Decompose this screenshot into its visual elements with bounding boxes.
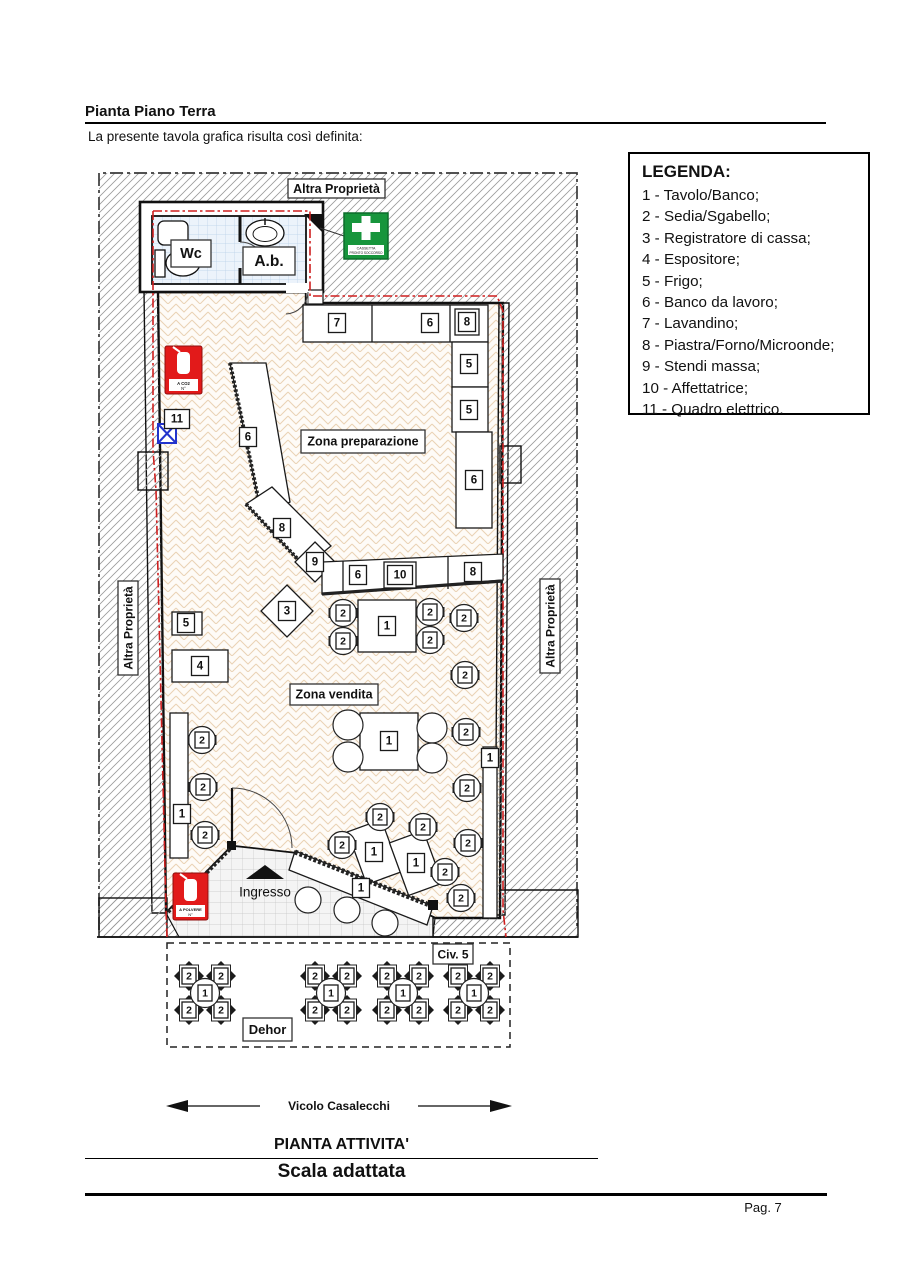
furniture-marker-2: 2 [340, 1002, 354, 1018]
svg-text:2: 2 [455, 971, 461, 983]
chair-marker: 2 [453, 719, 480, 746]
chair-marker: 2 [410, 814, 437, 841]
svg-text:2: 2 [462, 670, 468, 682]
chair-marker: 2 [330, 628, 357, 655]
svg-text:1: 1 [384, 621, 391, 633]
furniture-marker-2: 2 [461, 835, 475, 851]
furniture-marker-2: 2 [335, 837, 349, 853]
svg-text:7: 7 [334, 318, 340, 330]
dehor-table-group: 22221 [300, 961, 362, 1025]
furniture-marker-2: 2 [454, 890, 468, 906]
svg-text:2: 2 [218, 1005, 224, 1017]
svg-text:2: 2 [186, 971, 192, 983]
furniture-marker-2: 2 [336, 605, 350, 621]
furniture-marker-6: 6 [466, 471, 483, 490]
svg-text:2: 2 [461, 613, 467, 625]
chair-marker: 2 [455, 830, 482, 857]
chair-marker: 2 [192, 822, 219, 849]
extinguisher-sign-co2: A CO2 N° [165, 346, 202, 394]
svg-text:2: 2 [465, 838, 471, 850]
svg-text:1: 1 [179, 809, 186, 821]
svg-text:2: 2 [186, 1005, 192, 1017]
ab-label: A.b. [254, 253, 283, 270]
chair-marker: 2 [190, 774, 217, 801]
furniture-marker-2: 2 [340, 968, 354, 984]
street-caption: Vicolo Casalecchi [166, 1099, 512, 1113]
extinguisher-sign-powder: A POLVERE N° [173, 873, 208, 920]
svg-text:2: 2 [442, 867, 448, 879]
furniture-marker-5: 5 [461, 355, 478, 374]
furniture-marker-8: 8 [274, 519, 291, 538]
extinguisher-powder-text-2: N° [188, 912, 193, 917]
furniture-marker-8: 8 [465, 563, 482, 582]
civic-number-label: Civ. 5 [437, 948, 468, 962]
extinguisher-co2-text-2: N° [181, 386, 186, 391]
furniture-marker-9: 9 [307, 553, 324, 572]
furniture-marker-1: 1 [482, 749, 499, 768]
dehor-table-group: 22221 [443, 961, 505, 1025]
chair-marker: 2 [329, 832, 356, 859]
furniture-marker-2: 2 [214, 1002, 228, 1018]
svg-text:1: 1 [471, 988, 477, 1000]
svg-text:2: 2 [487, 1005, 493, 1017]
furniture-marker-5: 5 [178, 614, 195, 633]
furniture-marker-11: 11 [165, 410, 190, 429]
wc-label: Wc [180, 246, 202, 262]
furniture-marker-2: 2 [423, 604, 437, 620]
chair-marker: 2 [417, 627, 444, 654]
svg-text:2: 2 [427, 635, 433, 647]
sales-zone-label: Zona vendita [295, 688, 373, 702]
furniture-marker-6: 6 [422, 314, 439, 333]
svg-text:2: 2 [463, 727, 469, 739]
first-aid-sign: CASSETTA PRONTO SOCCORSO [344, 213, 388, 259]
furniture-marker-1: 1 [467, 985, 481, 1001]
furniture-marker-2: 2 [457, 610, 471, 626]
prep-zone-label: Zona preparazione [307, 435, 418, 449]
furniture-marker-2: 2 [458, 667, 472, 683]
svg-text:8: 8 [464, 317, 471, 329]
furniture-marker-2: 2 [182, 968, 196, 984]
furniture-marker-1: 1 [353, 879, 370, 898]
furniture-marker-2: 2 [336, 633, 350, 649]
furniture-marker-6: 6 [240, 428, 257, 447]
chair-marker: 2 [448, 885, 475, 912]
svg-text:11: 11 [171, 414, 184, 426]
furniture-marker-7: 7 [329, 314, 346, 333]
furniture-marker-2: 2 [460, 780, 474, 796]
svg-text:9: 9 [312, 557, 318, 569]
other-property-top-label: Altra Proprietà [293, 182, 380, 196]
svg-text:5: 5 [183, 618, 190, 630]
svg-text:6: 6 [471, 475, 477, 487]
furniture-marker-1: 1 [324, 985, 338, 1001]
svg-text:1: 1 [400, 988, 406, 1000]
furniture-marker-1: 1 [381, 732, 398, 751]
furniture-marker-1: 1 [408, 854, 425, 873]
svg-text:2: 2 [487, 971, 493, 983]
furniture-marker-10: 10 [384, 562, 416, 588]
chair-marker: 2 [452, 662, 479, 689]
first-aid-text-2: PRONTO SOCCORSO [349, 251, 383, 255]
furniture-marker-2: 2 [416, 819, 430, 835]
svg-text:3: 3 [284, 606, 290, 618]
svg-text:1: 1 [487, 753, 494, 765]
dehor-table-group: 22221 [372, 961, 434, 1025]
furniture-marker-2: 2 [308, 968, 322, 984]
svg-text:2: 2 [377, 812, 383, 824]
furniture-marker-1: 1 [396, 985, 410, 1001]
svg-text:1: 1 [386, 736, 393, 748]
svg-text:2: 2 [384, 1005, 390, 1017]
svg-text:2: 2 [458, 893, 464, 905]
furniture-marker-2: 2 [214, 968, 228, 984]
furniture-marker-2: 2 [451, 968, 465, 984]
furniture-marker-1: 1 [174, 805, 191, 824]
furniture-marker-2: 2 [412, 1002, 426, 1018]
svg-text:5: 5 [466, 405, 473, 417]
furniture-marker-2: 2 [380, 1002, 394, 1018]
svg-text:2: 2 [384, 971, 390, 983]
stool-circle [333, 742, 363, 772]
toilet-tank [155, 250, 165, 277]
svg-text:8: 8 [279, 523, 286, 535]
dehor-label: Dehor [249, 1022, 287, 1037]
svg-text:2: 2 [339, 840, 345, 852]
svg-text:2: 2 [344, 971, 350, 983]
svg-text:6: 6 [355, 570, 361, 582]
stool-circle [333, 710, 363, 740]
other-property-right-label: Altra Proprietà [544, 584, 558, 668]
furniture-marker-2: 2 [182, 1002, 196, 1018]
dehor-layer: 22221222212222122221 [174, 961, 505, 1025]
stool-circle [417, 713, 447, 743]
svg-text:2: 2 [340, 636, 346, 648]
svg-text:2: 2 [420, 822, 426, 834]
svg-text:1: 1 [413, 858, 420, 870]
furniture-marker-2: 2 [451, 1002, 465, 1018]
street-name: Vicolo Casalecchi [288, 1099, 390, 1113]
svg-text:1: 1 [202, 988, 208, 1000]
chair-marker: 2 [330, 600, 357, 627]
svg-text:2: 2 [202, 830, 208, 842]
svg-text:6: 6 [427, 318, 433, 330]
furniture-marker-1: 1 [366, 843, 383, 862]
street-arrow-left [166, 1100, 188, 1112]
svg-text:1: 1 [358, 883, 365, 895]
stool-circle [295, 887, 321, 913]
chair-marker: 2 [454, 775, 481, 802]
furniture-marker-8: 8 [455, 309, 479, 335]
furniture-marker-2: 2 [308, 1002, 322, 1018]
chair-marker: 2 [367, 804, 394, 831]
svg-text:2: 2 [464, 783, 470, 795]
dehor-table-group: 22221 [174, 961, 236, 1025]
svg-text:2: 2 [344, 1005, 350, 1017]
furniture-marker-2: 2 [380, 968, 394, 984]
svg-text:2: 2 [416, 971, 422, 983]
svg-text:2: 2 [200, 782, 206, 794]
furniture-marker-2: 2 [412, 968, 426, 984]
furniture-marker-4: 4 [192, 657, 209, 676]
document-page: { "page": { "title": "Pianta Piano Terra… [0, 0, 904, 1280]
svg-text:2: 2 [312, 971, 318, 983]
other-property-left-label: Altra Proprietà [122, 586, 136, 670]
furniture-marker-2: 2 [483, 1002, 497, 1018]
svg-text:2: 2 [427, 607, 433, 619]
furniture-marker-2: 2 [423, 632, 437, 648]
furniture-marker-1: 1 [379, 617, 396, 636]
ab-sink-basin [253, 227, 277, 242]
chair-marker: 2 [432, 859, 459, 886]
svg-text:2: 2 [199, 735, 205, 747]
furniture-marker-2: 2 [459, 724, 473, 740]
svg-text:8: 8 [470, 567, 477, 579]
bottom-left-wall [99, 898, 167, 937]
furniture-marker-2: 2 [195, 732, 209, 748]
furniture-marker-2: 2 [438, 864, 452, 880]
svg-text:2: 2 [312, 1005, 318, 1017]
entrance-label: Ingresso [239, 885, 291, 900]
svg-text:1: 1 [328, 988, 334, 1000]
stool-circle [334, 897, 360, 923]
svg-text:5: 5 [466, 359, 473, 371]
chair-marker: 2 [451, 605, 478, 632]
furniture-marker-2: 2 [198, 827, 212, 843]
furniture-marker-2: 2 [196, 779, 210, 795]
svg-text:1: 1 [371, 847, 378, 859]
svg-text:10: 10 [394, 570, 407, 582]
svg-text:2: 2 [218, 971, 224, 983]
floor-plan: CASSETTA PRONTO SOCCORSO [0, 0, 904, 1280]
furniture-marker-6: 6 [350, 566, 367, 585]
stool-circle [417, 743, 447, 773]
svg-text:2: 2 [416, 1005, 422, 1017]
stool-circle [372, 910, 398, 936]
svg-text:2: 2 [455, 1005, 461, 1017]
furniture-marker-5: 5 [461, 401, 478, 420]
chair-marker: 2 [189, 727, 216, 754]
svg-text:6: 6 [245, 432, 251, 444]
chair-marker: 2 [417, 599, 444, 626]
street-arrow-right [490, 1100, 512, 1112]
furniture-marker-2: 2 [483, 968, 497, 984]
furniture-marker-1: 1 [198, 985, 212, 1001]
svg-text:2: 2 [340, 608, 346, 620]
ab-door-gap [286, 283, 308, 293]
furniture-marker-2: 2 [373, 809, 387, 825]
furniture-marker-3: 3 [279, 602, 296, 621]
svg-text:4: 4 [197, 661, 204, 673]
